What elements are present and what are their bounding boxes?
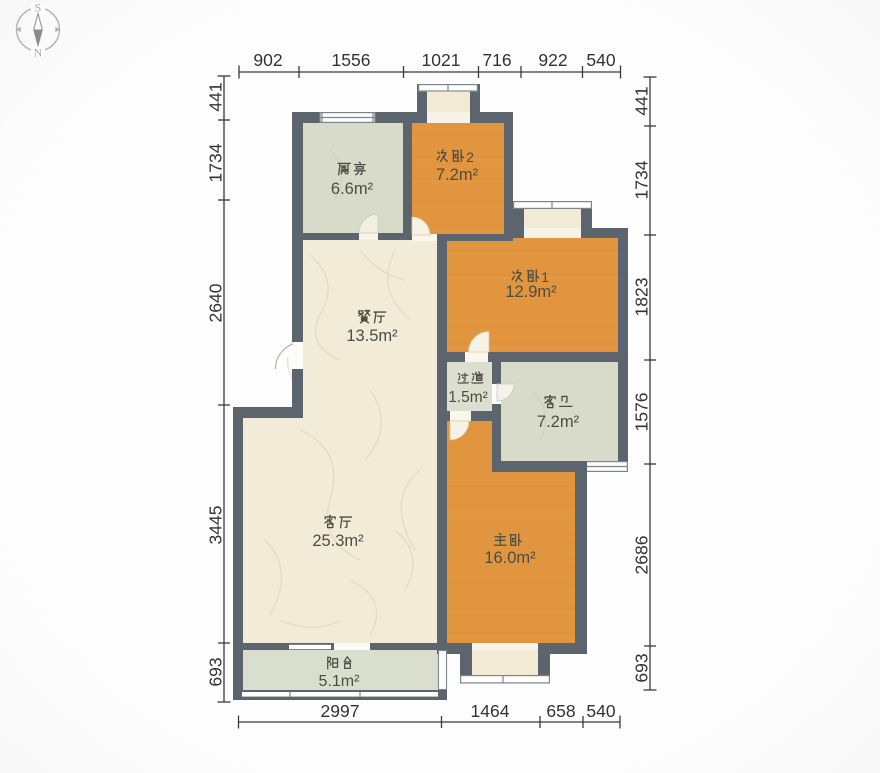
svg-text:922: 922 (538, 50, 567, 70)
svg-text:16.0m²: 16.0m² (484, 549, 536, 567)
svg-text:441: 441 (206, 82, 226, 111)
svg-text:1734: 1734 (206, 143, 226, 182)
svg-text:N: N (34, 46, 43, 60)
svg-text:1576: 1576 (632, 393, 652, 432)
svg-text:693: 693 (206, 657, 226, 686)
svg-text:7.2m²: 7.2m² (537, 413, 580, 431)
svg-text:716: 716 (482, 50, 511, 70)
svg-text:693: 693 (632, 653, 652, 682)
svg-text:2640: 2640 (206, 283, 226, 322)
svg-text:13.5m²: 13.5m² (346, 327, 398, 345)
svg-text:12.9m²: 12.9m² (505, 283, 557, 301)
svg-text:1464: 1464 (471, 701, 510, 721)
svg-text:1556: 1556 (332, 50, 371, 70)
svg-text:540: 540 (586, 701, 615, 721)
svg-text:7.2m²: 7.2m² (436, 166, 479, 184)
svg-text:1823: 1823 (632, 278, 652, 317)
svg-text:1.5m²: 1.5m² (448, 389, 488, 406)
svg-text:658: 658 (546, 701, 575, 721)
svg-text:S: S (35, 1, 42, 15)
svg-text:540: 540 (586, 50, 615, 70)
svg-text:3445: 3445 (206, 506, 226, 545)
svg-text:25.3m²: 25.3m² (312, 532, 364, 550)
svg-text:2: 2 (466, 150, 474, 166)
svg-text:1734: 1734 (632, 160, 652, 199)
svg-text:2686: 2686 (632, 536, 652, 575)
svg-text:441: 441 (632, 86, 652, 115)
svg-text:6.6m²: 6.6m² (331, 180, 374, 198)
svg-text:1021: 1021 (422, 50, 461, 70)
svg-text:2997: 2997 (321, 701, 360, 721)
svg-text:902: 902 (253, 50, 282, 70)
svg-text:5.1m²: 5.1m² (319, 673, 361, 690)
